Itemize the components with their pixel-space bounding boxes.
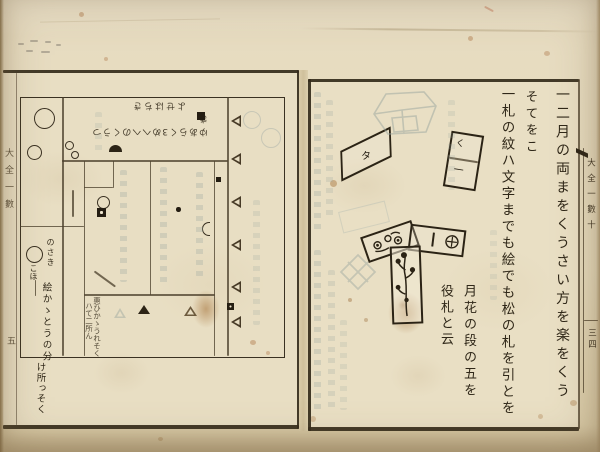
triangle-marker-outline: [184, 306, 197, 316]
showthrough-text: [340, 320, 347, 410]
pencil-mark: [30, 40, 38, 42]
showthrough-diamond-stamp: [336, 250, 380, 294]
tick-marker: [72, 190, 74, 217]
card-split-top-label: く: [455, 136, 466, 150]
triangle-marker: [231, 239, 241, 251]
edge-strip-page-number: 三四: [587, 328, 596, 351]
corner-note-head2: こほ: [29, 264, 37, 280]
dome-marker: [109, 145, 122, 152]
text-column-1: 一二月の両まをくうさい方を楽をくう: [555, 87, 569, 402]
triangle-marker: [231, 115, 241, 127]
box-note-col1: 惠ひかゝうれそく: [93, 297, 101, 357]
crease-line: [40, 18, 220, 22]
left-frame-bottom: [3, 425, 299, 429]
text-column-2: そてをこ: [524, 90, 537, 156]
showthrough-text: [95, 112, 102, 152]
showthrough-text: [253, 200, 260, 325]
text-column-3: 一札の紋ハ文字までも絵でも松の札を引とを: [499, 87, 513, 417]
showthrough-text: [326, 100, 333, 220]
stain: [468, 36, 473, 41]
right-frame-left: [308, 79, 311, 431]
card-pine: [390, 245, 424, 324]
circle-marker: [27, 145, 42, 160]
stain: [158, 437, 163, 441]
diagram-top-label: ゆあらく3めへへのくうつき よせはちき: [88, 103, 208, 139]
pencil-mark: [41, 51, 50, 53]
corner-note-col1: 絵かゝとうの分: [41, 282, 51, 363]
edge-strip-title: 大全一數十: [586, 158, 595, 236]
stain: [104, 57, 108, 61]
showthrough-text: [120, 170, 127, 282]
circle-marker: [34, 108, 55, 129]
box-note-col2: ハて二所ん: [85, 302, 93, 340]
crease-line: [300, 27, 600, 32]
diagram-top-label-line2: よせはちき: [88, 100, 186, 113]
diagram-line-v: [227, 97, 229, 356]
triangle-marker: [231, 316, 241, 328]
text-column-4: 月花の段の五を: [462, 284, 475, 400]
showthrough-text: [490, 230, 497, 300]
left-hashira-line: [16, 73, 17, 425]
dome-marker: [202, 222, 210, 236]
diagram-line-h: [62, 160, 228, 162]
pencil-mark: [26, 50, 33, 52]
square-marker: [216, 177, 221, 182]
dot-marker: [176, 207, 181, 212]
left-frame-top: [3, 70, 299, 73]
showthrough-circle: [261, 128, 281, 148]
showthrough-text: [196, 172, 203, 277]
left-paper-edge: [0, 0, 4, 452]
showthrough-circle: [243, 111, 261, 129]
triangle-marker-filled: [138, 305, 150, 314]
square-marker: [197, 112, 205, 120]
pine-branch-icon: [392, 248, 422, 323]
book-spread-photo: 大全一數 五 ゆあらく3めへへのくうつき よせはちき 惠ひかゝうれそく ハて二所…: [0, 0, 600, 452]
paper-fiber: [484, 6, 494, 12]
right-paper-edge: [596, 0, 600, 452]
corner-note-col2: け所っそく: [35, 362, 45, 415]
stain: [79, 12, 84, 17]
text-column-5: 役札と云: [439, 284, 452, 348]
right-frame-right: [578, 79, 580, 429]
showthrough-text: [314, 92, 321, 232]
card-bar-mark: [431, 232, 435, 246]
square-dot-marker: [227, 303, 234, 310]
left-hashira-title: 大全一數: [3, 148, 12, 216]
triangle-marker: [231, 196, 241, 208]
edge-strip-line: [583, 148, 584, 393]
showthrough-text: [328, 270, 335, 410]
showthrough-box-sketch: [372, 90, 438, 136]
card-tilted-label: タ: [360, 146, 371, 162]
page-gutter: [299, 70, 308, 431]
coin-emblem-icon: [443, 233, 461, 251]
pencil-mark: [18, 43, 24, 45]
showthrough-text: [448, 100, 455, 190]
showthrough-text: [314, 250, 321, 410]
diagram-line-h: [84, 294, 215, 296]
circle-marker: [26, 246, 43, 263]
showthrough-text: [160, 167, 167, 287]
circle-marker: [65, 141, 74, 150]
triangle-marker: [231, 153, 241, 165]
circle-marker: [71, 151, 79, 159]
stain: [544, 51, 550, 56]
corner-note-head: のさき: [46, 238, 54, 268]
stroke-mark: [35, 280, 36, 296]
pencil-mark: [56, 44, 61, 46]
diagram-top-label-line1: ゆあらく3めへへのくうつき: [88, 113, 208, 139]
left-page-number: 五: [5, 336, 14, 345]
triangle-marker: [231, 281, 241, 293]
square-dot-marker: [97, 208, 106, 217]
right-frame-top: [308, 79, 579, 82]
left-frame-right: [297, 70, 299, 429]
pencil-mark: [45, 41, 51, 43]
triangle-marker-faint: [114, 308, 126, 318]
right-frame-bottom: [308, 427, 579, 431]
